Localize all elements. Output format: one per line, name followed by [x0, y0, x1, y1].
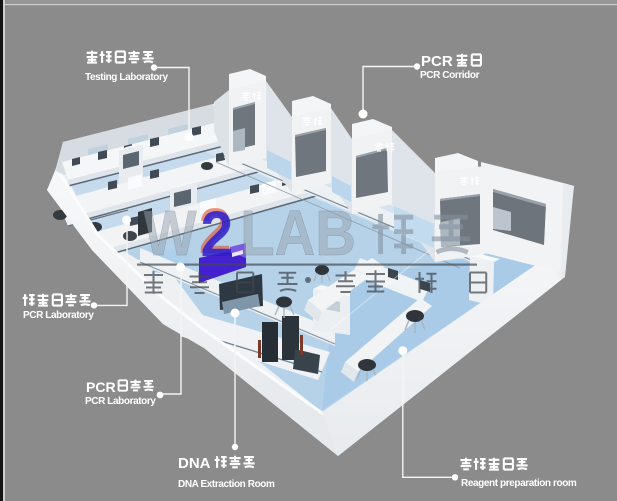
svg-text:W: W	[143, 197, 196, 269]
svg-text:DNA: DNA	[178, 455, 211, 472]
svg-text:PCR Laboratory: PCR Laboratory	[85, 396, 156, 407]
svg-text:LAB: LAB	[240, 197, 356, 269]
svg-text:PCR Laboratory: PCR Laboratory	[23, 310, 94, 321]
svg-text:2: 2	[201, 199, 234, 271]
svg-text:PCR Corridor: PCR Corridor	[420, 70, 480, 81]
svg-text:PCR: PCR	[421, 53, 453, 70]
svg-text:Testing Laboratory: Testing Laboratory	[85, 72, 168, 83]
svg-text:DNA Extraction Room: DNA Extraction Room	[178, 479, 275, 490]
svg-text:Reagent preparation room: Reagent preparation room	[461, 478, 577, 489]
svg-text:PCR: PCR	[86, 379, 116, 395]
